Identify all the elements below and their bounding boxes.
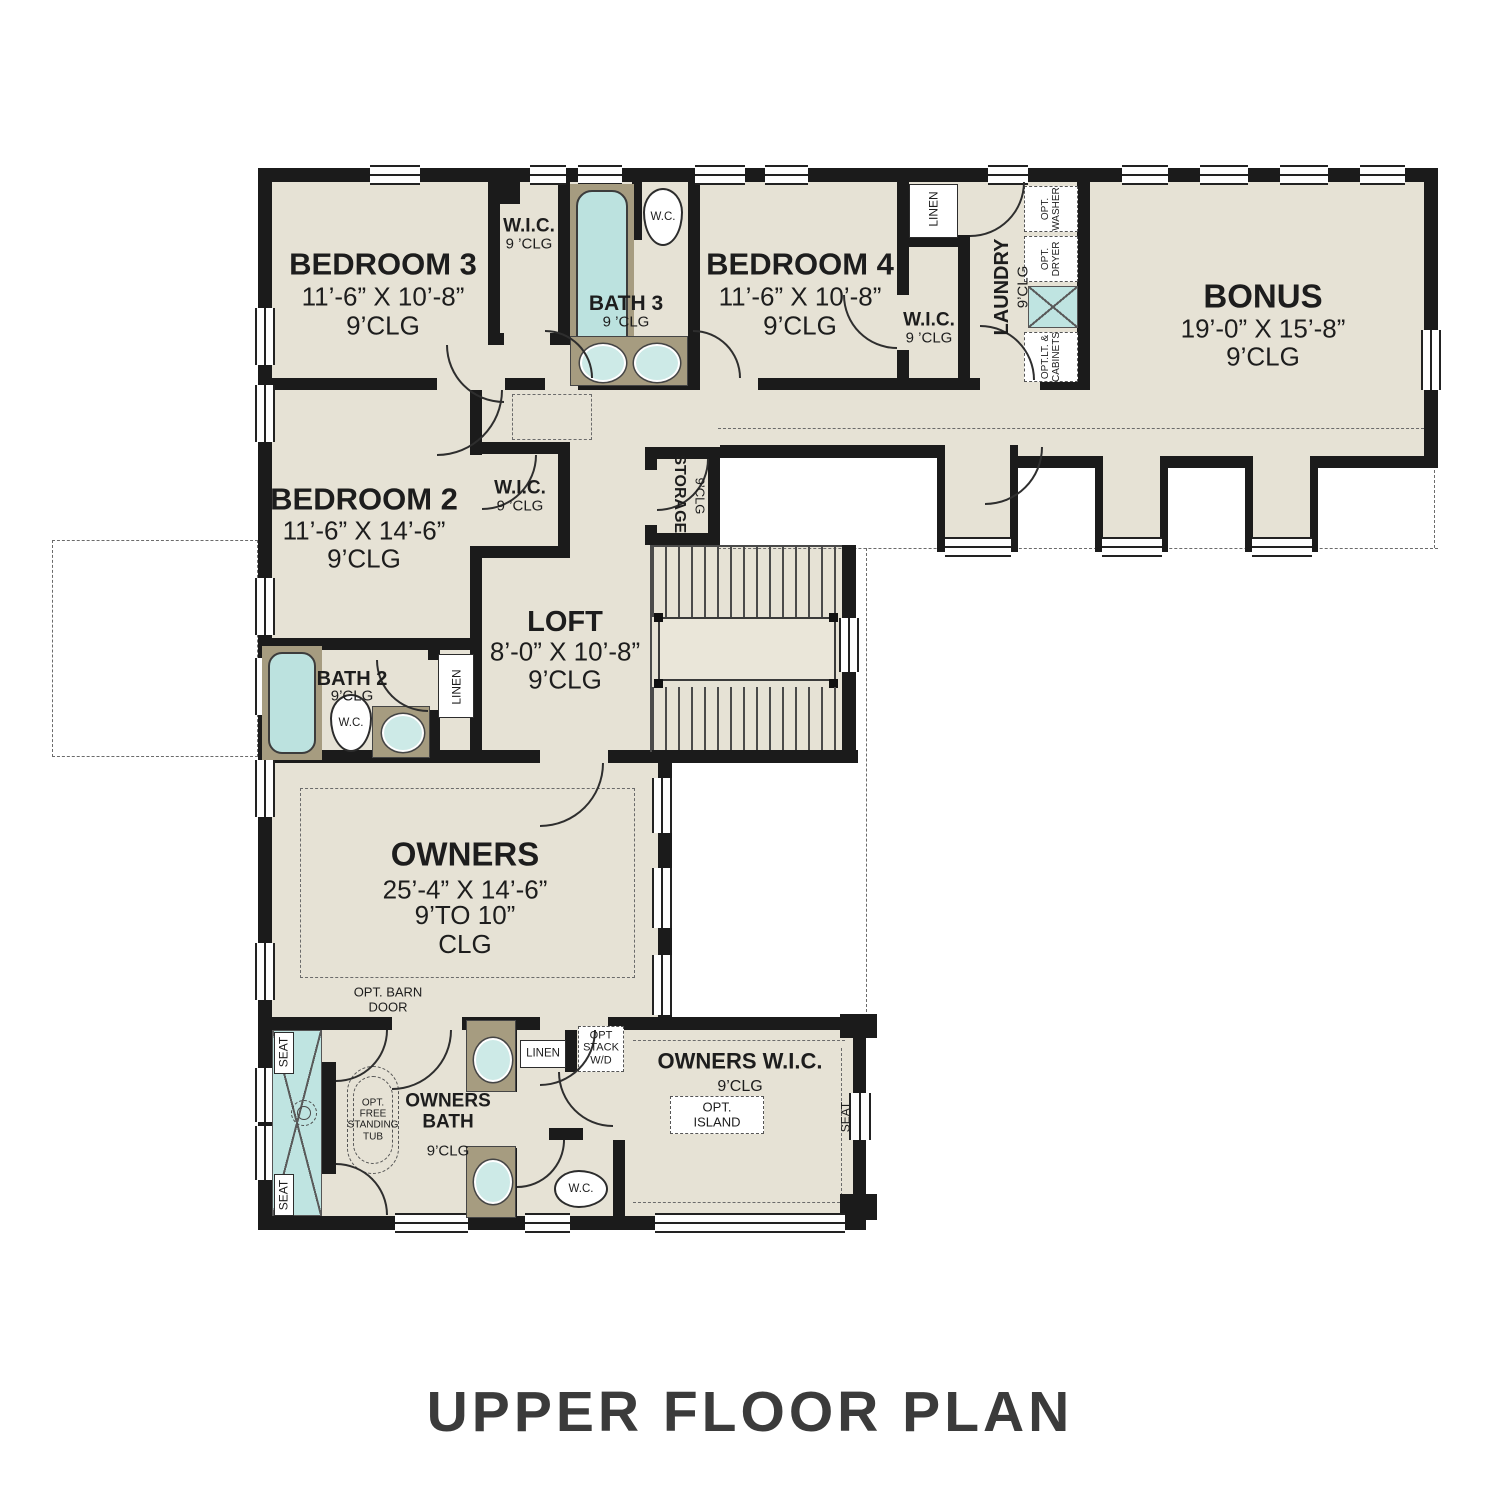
bedroom2-dim: 11’-6” X 14’-6” [283, 516, 446, 545]
laundry-name: LAUNDRY [991, 238, 1013, 335]
wall [258, 1017, 392, 1030]
laundry-clg: 9’CLG [1016, 266, 1033, 309]
bedroom2-clg: 9’CLG [327, 544, 401, 573]
stair-treads-lower [652, 687, 842, 750]
wall [258, 378, 437, 390]
window [652, 868, 672, 928]
bonus-dim: 19’-0” X 15’-8” [1181, 314, 1346, 343]
window [255, 385, 275, 442]
owners-wic-name: OWNERS W.I.C. [658, 1050, 823, 1075]
owners-name: OWNERS [391, 837, 540, 874]
window [525, 1213, 570, 1233]
floor-dormer-3 [1253, 456, 1310, 548]
seat-label: SEAT [277, 1037, 290, 1067]
window [652, 778, 672, 833]
bonus-clg: 9’CLG [1226, 342, 1300, 371]
storage-name: STORAGE. [670, 454, 688, 537]
wall [558, 182, 570, 345]
owners-bath-name: OWNERS BATH [405, 1091, 491, 1134]
wc-label: W.C. [339, 717, 364, 729]
opt-stack-wd-label: OPT STACK W/D [583, 1030, 619, 1067]
wc-label: W.C. [569, 1183, 594, 1195]
stair-landing [658, 617, 836, 681]
wic-shelf-line-bottom [633, 1202, 845, 1203]
window [945, 537, 1011, 557]
bath3-clg: 9 ’CLG [603, 315, 650, 332]
seat-label: SEAT [839, 1102, 852, 1132]
wall [958, 378, 980, 390]
wic-bed4-clg: 9 ’CLG [906, 331, 953, 348]
window [1200, 165, 1248, 185]
shower-drain [297, 1106, 311, 1120]
window [839, 618, 859, 672]
opt-island-label: OPT. ISLAND [694, 1100, 741, 1129]
door-swing [985, 447, 1043, 505]
wall [897, 182, 909, 295]
bedroom4-dim: 11’-6” X 10’-8” [719, 282, 882, 311]
wall [549, 1128, 583, 1140]
window [695, 165, 745, 185]
bedroom4-clg: 9’CLG [763, 311, 837, 340]
wall [470, 442, 570, 454]
wic-bed2-clg: 9 ’CLG [497, 499, 544, 516]
wall [608, 750, 858, 763]
wall [1424, 168, 1438, 468]
wic-bed3-clg: 9 ’CLG [506, 237, 553, 254]
owners-sink [474, 1160, 512, 1204]
wall [480, 750, 540, 763]
loft-clg: 9’CLG [528, 665, 602, 694]
wall [1077, 168, 1090, 385]
window [370, 165, 420, 185]
window [1122, 165, 1168, 185]
wall [840, 1194, 877, 1220]
stair-post [829, 613, 838, 622]
opt-barn-door-label: OPT. BARN DOOR [354, 985, 423, 1014]
wic-bed2-name: W.I.C. [494, 477, 546, 498]
owners-bath-clg: 9’CLG [427, 1144, 470, 1161]
linen-label: LINEN [927, 191, 940, 226]
seat-label: SEAT [277, 1180, 290, 1210]
owners-clg: 9’TO 10” CLG [415, 901, 516, 959]
wc-label: W.C. [651, 211, 676, 223]
window [1280, 165, 1328, 185]
wall [258, 168, 1438, 182]
window [530, 165, 566, 185]
floor-dormer-2 [1103, 456, 1160, 548]
bonus-name: BONUS [1203, 279, 1322, 316]
window [655, 1213, 845, 1233]
window [765, 165, 808, 185]
bedroom4-name: BEDROOM 4 [706, 248, 894, 283]
attic-access-outline [512, 394, 592, 440]
laundry-sink [1028, 286, 1078, 328]
owners-wic-clg: 9’CLG [717, 1078, 762, 1096]
wall [1318, 456, 1424, 468]
owners-sink [474, 1038, 512, 1082]
wic-bed3-name: W.I.C. [503, 215, 555, 236]
opt-dryer-label: OPT. DRYER [1040, 242, 1062, 277]
wall [470, 558, 482, 650]
window [1421, 330, 1441, 390]
window [1360, 165, 1405, 185]
linen-label: LINEN [450, 669, 463, 704]
wall [488, 182, 500, 345]
window [395, 1213, 468, 1233]
bath3-sink [634, 344, 680, 382]
wall [505, 378, 545, 390]
wall [645, 447, 657, 470]
window [255, 943, 275, 1000]
bath2-sink [382, 714, 424, 752]
roof-line-top [718, 428, 1424, 429]
wall [840, 1014, 877, 1038]
wic-bed4-name: W.I.C. [903, 309, 955, 330]
stair-post [654, 613, 663, 622]
wall [558, 442, 570, 558]
bath3-name: BATH 3 [589, 292, 663, 316]
window [255, 760, 275, 817]
roof-outline-left [52, 540, 258, 757]
wall [613, 1140, 625, 1218]
plan-title: UPPER FLOOR PLAN [427, 1379, 1074, 1445]
wall [758, 378, 958, 390]
loft-dim: 8’-0” X 10’-8” [490, 637, 640, 666]
bath2-tub [268, 652, 316, 754]
shower-glass [322, 1062, 336, 1174]
roof-line-vertical [866, 548, 867, 1017]
window [578, 165, 622, 185]
opt-washer-label: OPT. WASHER [1040, 187, 1062, 231]
wall [470, 546, 570, 558]
bedroom3-name: BEDROOM 3 [289, 248, 477, 283]
bedroom3-clg: 9’CLG [346, 311, 420, 340]
open-void [720, 458, 842, 545]
wall [958, 247, 970, 390]
window [255, 578, 275, 635]
wall [488, 333, 504, 345]
window [1252, 537, 1312, 557]
upper-floor-plan: W.C. W.C. W.C. [0, 0, 1500, 1500]
bedroom3-dim: 11’-6” X 10’-8” [302, 282, 465, 311]
opt-free-tub-label: OPT. FREE STANDING TUB [348, 1098, 399, 1143]
wall [708, 447, 720, 545]
window [1102, 537, 1162, 557]
wall [1168, 456, 1253, 468]
wall [937, 445, 945, 552]
window [255, 308, 275, 365]
bath2-clg: 9’CLG [331, 689, 374, 706]
stair-treads-upper [652, 547, 842, 617]
storage-clg: 9’CLG [692, 478, 707, 515]
wall [720, 445, 945, 458]
window [652, 955, 672, 1015]
bedroom2-name: BEDROOM 2 [270, 483, 458, 518]
loft-name: LOFT [527, 606, 603, 638]
roof-line-right [1434, 460, 1435, 548]
wall [608, 1017, 866, 1030]
linen-label: LINEN [526, 1048, 560, 1061]
opt-cabinets-label: OPT.LT. & CABINETS [1040, 332, 1062, 382]
wic-shelf-line-top [633, 1040, 845, 1041]
